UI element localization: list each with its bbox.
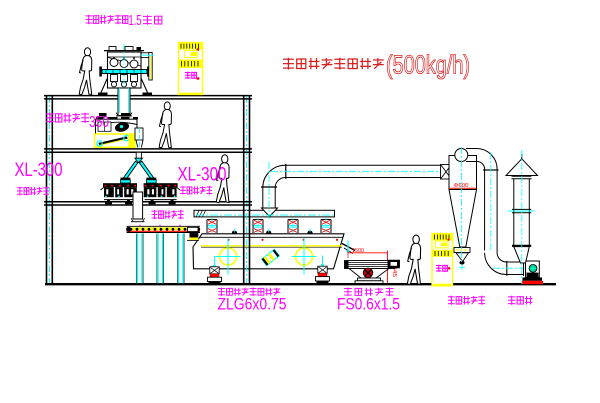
svg-text:1500: 1500 — [352, 248, 364, 254]
svg-text:1.5: 1.5 — [129, 12, 142, 29]
svg-text:(500kg/h): (500kg/h) — [386, 50, 470, 80]
svg-text:FS0.6x1.5: FS0.6x1.5 — [337, 295, 400, 314]
svg-text:350: 350 — [89, 114, 109, 131]
svg-text:XL-300: XL-300 — [178, 165, 227, 186]
svg-text:Φ600: Φ600 — [454, 183, 469, 189]
svg-text:ZLG6x0.75: ZLG6x0.75 — [218, 295, 287, 314]
svg-text:XL-300: XL-300 — [15, 160, 63, 181]
